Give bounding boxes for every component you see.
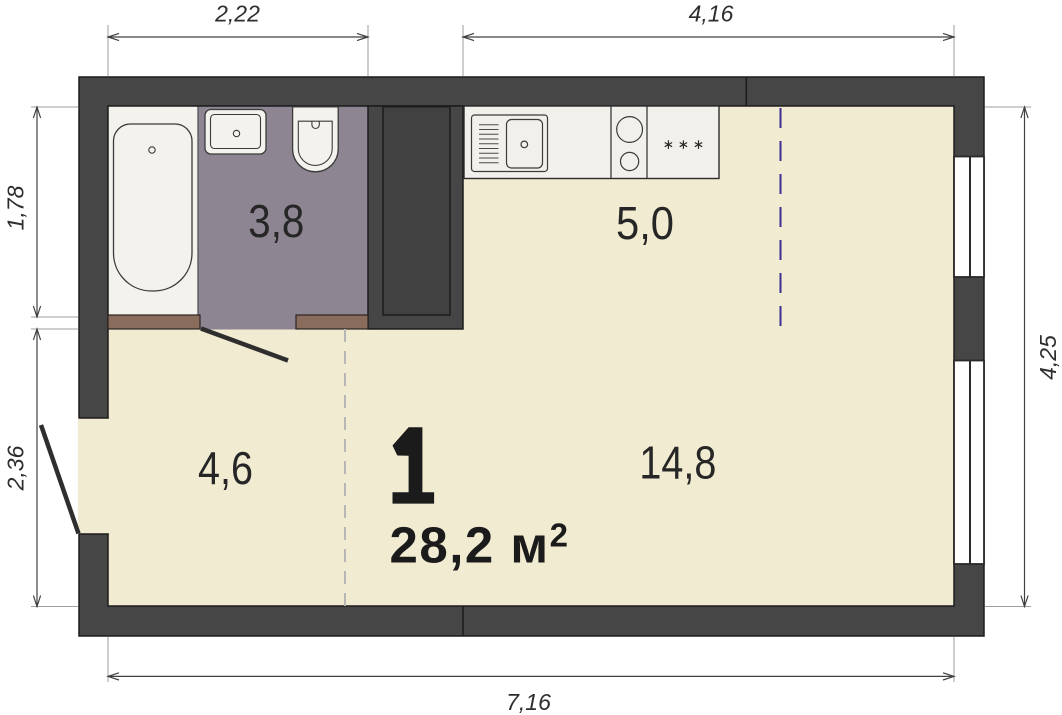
svg-text:7,16: 7,16 (506, 689, 551, 715)
svg-text:5,0: 5,0 (616, 197, 674, 249)
svg-text:4,25: 4,25 (1035, 335, 1061, 380)
svg-text:1,78: 1,78 (3, 185, 29, 230)
svg-text:3,8: 3,8 (248, 195, 304, 247)
svg-text:28,2 м2: 28,2 м2 (390, 517, 570, 574)
svg-text:2,22: 2,22 (214, 1, 260, 27)
svg-text:14,8: 14,8 (639, 437, 716, 489)
svg-text:4,16: 4,16 (689, 1, 734, 27)
svg-text:2,36: 2,36 (3, 445, 29, 491)
svg-text:4,6: 4,6 (198, 442, 253, 494)
